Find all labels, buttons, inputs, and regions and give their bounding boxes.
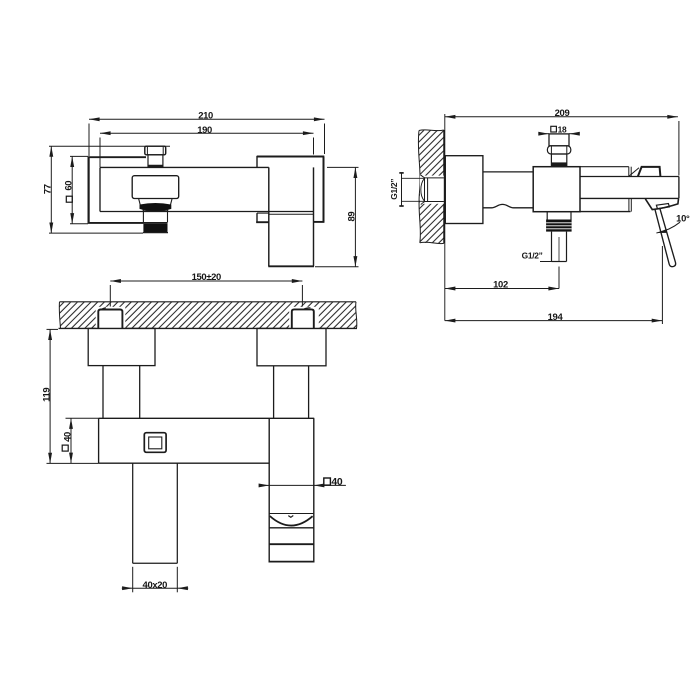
svg-text:194: 194	[548, 312, 564, 323]
svg-text:210: 210	[198, 111, 213, 122]
svg-text:G1/2”: G1/2”	[522, 251, 543, 261]
svg-text:77: 77	[43, 184, 54, 194]
svg-text:10°: 10°	[676, 213, 690, 224]
svg-text:40: 40	[331, 477, 342, 488]
svg-text:18: 18	[558, 124, 567, 134]
svg-text:150±20: 150±20	[192, 272, 221, 283]
svg-text:89: 89	[347, 212, 358, 222]
svg-text:102: 102	[493, 280, 508, 291]
svg-text:G1/2”: G1/2”	[389, 179, 399, 200]
svg-text:60: 60	[64, 181, 75, 191]
svg-text:209: 209	[555, 108, 570, 119]
svg-text:40: 40	[62, 432, 73, 442]
svg-text:40x20: 40x20	[143, 580, 168, 591]
svg-text:119: 119	[41, 388, 52, 402]
svg-text:190: 190	[197, 125, 212, 136]
